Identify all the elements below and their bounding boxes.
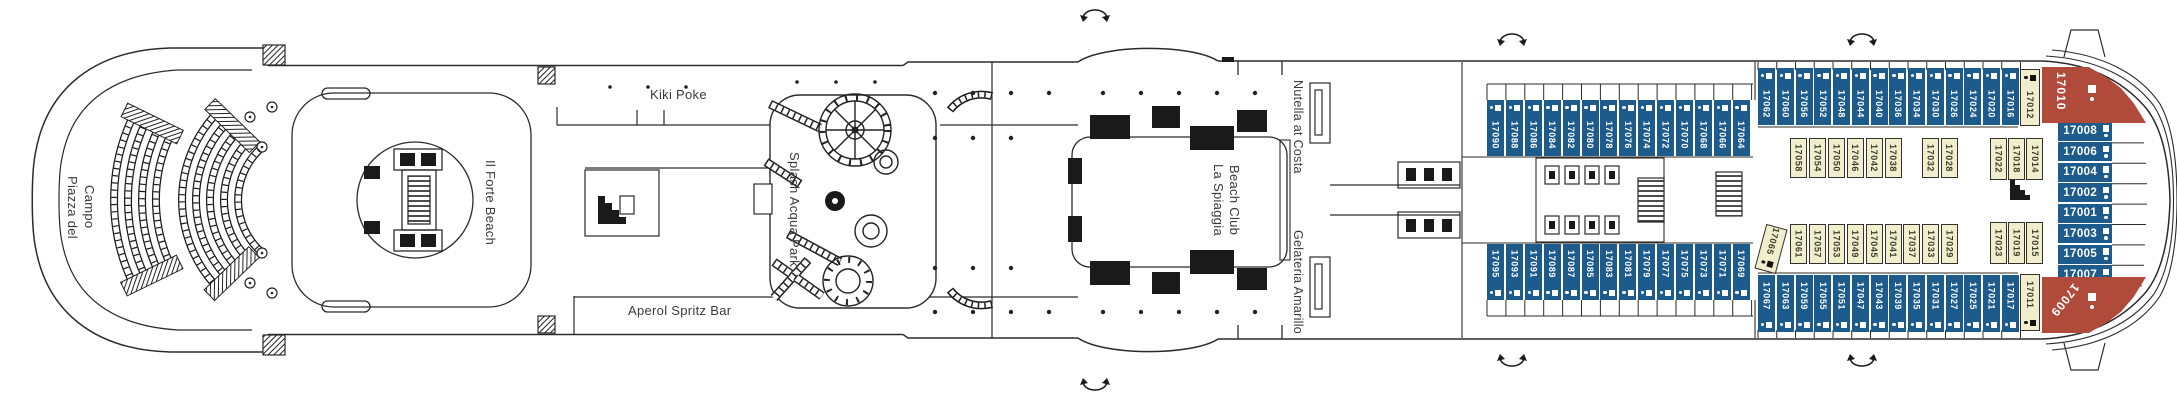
extra-berth-square-icon — [1973, 322, 1979, 328]
berth-icons — [1679, 100, 1691, 115]
upper-berth-dot-icon — [1948, 74, 1952, 78]
cabin-number: 17055 — [1818, 275, 1828, 317]
cabin-number: 17068 — [1698, 115, 1708, 156]
berth-icons — [1855, 317, 1867, 332]
extra-berth-square-icon — [1665, 290, 1671, 296]
extra-berth-square-icon — [1879, 322, 1885, 328]
berth-icons — [1930, 68, 1942, 83]
cabin-number: 17054 — [1812, 139, 1822, 177]
extra-berth-square-icon — [1590, 290, 1596, 296]
berth-icons — [1817, 68, 1829, 83]
cabin-number: 17085 — [1585, 244, 1595, 285]
extra-berth-square-icon — [1495, 290, 1501, 296]
extra-berth-square-icon — [1741, 290, 1747, 296]
berth-icons — [1546, 100, 1558, 115]
extra-berth-square-icon — [1646, 105, 1652, 111]
extra-berth-square-icon — [1898, 73, 1904, 79]
extra-berth-square-icon — [1823, 73, 1829, 79]
upper-berth-dot-icon — [1546, 291, 1550, 295]
cabin-number: 17034 — [1912, 83, 1922, 125]
cabin-number: 17004 — [2058, 166, 2103, 178]
cabin-number: 17087 — [1566, 244, 1576, 285]
upper-berth-dot-icon — [1967, 74, 1971, 78]
cabin-17075[interactable]: 17075 — [1676, 244, 1693, 300]
cabin-17022[interactable]: 17022 — [1990, 138, 2007, 180]
extra-berth-square-icon — [1514, 105, 1520, 111]
upper-berth-dot-icon — [1509, 106, 1513, 110]
upper-berth-dot-icon — [2104, 236, 2108, 240]
berth-icons — [1911, 317, 1923, 332]
extra-berth-square-icon — [1991, 322, 1997, 328]
cabin-17070[interactable]: 17070 — [1676, 100, 1693, 156]
upper-berth-dot-icon — [1641, 106, 1645, 110]
cabin-17012[interactable]: 17012 — [2020, 69, 2040, 126]
cabin-number: 17025 — [1968, 275, 1978, 317]
cabin-17084[interactable]: 17084 — [1544, 100, 1561, 156]
cabin-number: 17040 — [1874, 83, 1884, 125]
upper-berth-dot-icon — [1641, 291, 1645, 295]
cabin-17091[interactable]: 17091 — [1525, 244, 1542, 300]
cabin-number: 17069 — [1736, 244, 1746, 285]
cabin-number: 17024 — [1968, 83, 1978, 125]
cabin-number: 17048 — [1837, 83, 1847, 125]
extra-berth-square-icon — [1823, 322, 1829, 328]
extra-berth-square-icon — [2103, 207, 2110, 214]
cabin-17067[interactable]: 17067 — [1758, 275, 1775, 332]
extra-berth-square-icon — [1722, 290, 1728, 296]
cabin-17058[interactable]: 17058 — [1790, 138, 1807, 178]
cabin-17082[interactable]: 17082 — [1563, 100, 1580, 156]
cabin-number: 17015 — [2030, 223, 2040, 263]
upper-berth-dot-icon — [1735, 106, 1739, 110]
upper-berth-dot-icon — [1584, 291, 1588, 295]
extra-berth-square-icon — [1665, 105, 1671, 111]
cabin-17056[interactable]: 17056 — [1796, 68, 1813, 125]
cabin-number: 17029 — [1945, 225, 1955, 263]
cabin-number: 17075 — [1680, 244, 1690, 285]
cabin-17068[interactable]: 17068 — [1695, 100, 1712, 156]
cabin-17030[interactable]: 17030 — [1927, 68, 1944, 125]
cabin-17003[interactable]: 17003 — [2058, 224, 2112, 243]
cabin-number: 17093 — [1509, 244, 1519, 285]
upper-berth-dot-icon — [1698, 291, 1702, 295]
cabin-17053[interactable]: 17053 — [1828, 224, 1845, 264]
berth-icons — [1509, 285, 1521, 300]
extra-berth-square-icon — [1879, 73, 1885, 79]
upper-berth-dot-icon — [2104, 195, 2108, 199]
cabin-number: 17005 — [2058, 248, 2103, 260]
extra-berth-square-icon — [2103, 187, 2110, 194]
cabin-17063[interactable]: 17063 — [1777, 275, 1794, 332]
upper-berth-dot-icon — [1948, 323, 1952, 327]
extra-berth-square-icon — [1916, 322, 1922, 328]
cabin-17014[interactable]: 17014 — [2026, 138, 2043, 180]
upper-berth-dot-icon — [1986, 323, 1990, 327]
cabin-number: 17016 — [2005, 83, 2015, 125]
venue-label-kiki-poke: Kiki Poke — [650, 87, 707, 102]
cabin-17054[interactable]: 17054 — [1809, 138, 1826, 178]
stairs-updown-arrow-icon — [1080, 10, 1877, 390]
berth-icons — [1660, 285, 1672, 300]
cabin-17076[interactable]: 17076 — [1619, 100, 1636, 156]
deck-plan: Piazza del Campo Il Forte Beach Kiki Pok… — [0, 0, 2177, 400]
berth-icons — [2005, 317, 2017, 332]
cabin-number: 17039 — [1893, 275, 1903, 317]
cabin-number: 17011 — [2025, 275, 2035, 315]
cabin-17006[interactable]: 17006 — [2058, 142, 2112, 161]
cabin-17081[interactable]: 17081 — [1619, 244, 1636, 300]
upper-berth-dot-icon — [1528, 106, 1532, 110]
cabin-17020[interactable]: 17020 — [1983, 68, 2000, 125]
cabin-17061[interactable]: 17061 — [1790, 224, 1807, 264]
stern-ticks — [2112, 123, 2147, 286]
venue-label-gelateria-amarillo: Gelateria Amarillo — [1289, 224, 1306, 340]
extra-berth-square-icon — [1841, 73, 1847, 79]
cabin-17095[interactable]: 17095 — [1487, 244, 1504, 300]
berth-icons — [1717, 100, 1729, 115]
berth-icons — [1967, 317, 1979, 332]
upper-berth-dot-icon — [1892, 74, 1896, 78]
cabin-17046[interactable]: 17046 — [1847, 138, 1864, 178]
berth-icons — [1817, 317, 1829, 332]
upper-berth-dot-icon — [1817, 74, 1821, 78]
cabin-number: 17086 — [1528, 115, 1538, 156]
upper-berth-dot-icon — [1930, 323, 1934, 327]
berth-icons — [1698, 285, 1710, 300]
elevator-icon — [1545, 166, 1619, 234]
extra-berth-square-icon — [1935, 322, 1941, 328]
cabin-17032[interactable]: 17032 — [1922, 138, 1939, 178]
cabin-17043[interactable]: 17043 — [1871, 275, 1888, 332]
cabin-17057[interactable]: 17057 — [1809, 224, 1826, 264]
extra-berth-square-icon — [1785, 73, 1791, 79]
cabin-17044[interactable]: 17044 — [1852, 68, 1869, 125]
cabin-17073[interactable]: 17073 — [1695, 244, 1712, 300]
berth-icons — [1735, 285, 1747, 300]
cabin-17062[interactable]: 17062 — [1758, 68, 1775, 125]
berth-icons — [2088, 85, 2096, 101]
venue-label-nutella-at-costa: Nutella at Costa — [1289, 74, 1306, 180]
cabin-17087[interactable]: 17087 — [1563, 244, 1580, 300]
extra-berth-square-icon — [1991, 73, 1997, 79]
cabin-number: 17089 — [1547, 244, 1557, 285]
extra-berth-square-icon — [1935, 73, 1941, 79]
upper-berth-dot-icon — [1603, 291, 1607, 295]
cabin-17066[interactable]: 17066 — [1714, 100, 1731, 156]
upper-berth-dot-icon — [2024, 76, 2028, 80]
berth-icons — [1780, 68, 1792, 83]
upper-berth-dot-icon — [2104, 134, 2108, 138]
cabin-17049[interactable]: 17049 — [1847, 224, 1864, 264]
beach-club-structure — [1068, 61, 1290, 339]
cabin-number: 17022 — [1994, 139, 2004, 179]
cabin-17016[interactable]: 17016 — [2002, 68, 2019, 125]
cabin-17042[interactable]: 17042 — [1866, 138, 1883, 178]
berth-icons — [1873, 317, 1885, 332]
extra-berth-square-icon — [1514, 290, 1520, 296]
cabin-17071[interactable]: 17071 — [1714, 244, 1731, 300]
deck-stairs-curved — [950, 95, 992, 306]
cabin-17064[interactable]: 17064 — [1733, 100, 1750, 156]
berth-icons — [1622, 285, 1634, 300]
berth-icons — [1584, 285, 1596, 300]
cabin-17027[interactable]: 17027 — [1946, 275, 1963, 332]
cabin-17047[interactable]: 17047 — [1852, 275, 1869, 332]
cabin-number: 17037 — [1907, 225, 1917, 263]
upper-berth-dot-icon — [1698, 106, 1702, 110]
upper-berth-dot-icon — [1855, 323, 1859, 327]
upper-berth-dot-icon — [1565, 291, 1569, 295]
upper-berth-dot-icon — [1735, 291, 1739, 295]
berth-icons — [2024, 315, 2036, 330]
berth-icons — [1986, 317, 1998, 332]
amphitheatre-seating — [114, 99, 277, 301]
cabin-17086[interactable]: 17086 — [1525, 100, 1542, 156]
cabin-number: 17056 — [1799, 83, 1809, 125]
cabin-number: 17079 — [1642, 244, 1652, 285]
berth-icons — [1660, 100, 1672, 115]
upper-berth-dot-icon — [1546, 106, 1550, 110]
cabin-17052[interactable]: 17052 — [1814, 68, 1831, 125]
cabin-17069[interactable]: 17069 — [1733, 244, 1750, 300]
upper-berth-dot-icon — [1798, 74, 1802, 78]
berth-icons — [1679, 285, 1691, 300]
upper-berth-dot-icon — [1836, 74, 1840, 78]
berth-icons — [1603, 100, 1615, 115]
upper-berth-dot-icon — [2005, 323, 2009, 327]
extra-berth-square-icon — [1533, 105, 1539, 111]
cabin-17026[interactable]: 17026 — [1946, 68, 1963, 125]
berth-icons — [1641, 285, 1653, 300]
extra-berth-square-icon — [1495, 105, 1501, 111]
cabin-number: 17033 — [1926, 225, 1936, 263]
extra-berth-square-icon — [2030, 320, 2036, 326]
cabin-17037[interactable]: 17037 — [1903, 224, 1920, 264]
upper-berth-dot-icon — [1761, 260, 1765, 264]
upper-berth-dot-icon — [1660, 106, 1664, 110]
cabin-17011[interactable]: 17011 — [2020, 274, 2040, 331]
cabin-17034[interactable]: 17034 — [1908, 68, 1925, 125]
extra-berth-square-icon — [2103, 166, 2110, 173]
extra-berth-square-icon — [2103, 228, 2110, 235]
cabin-number: 17014 — [2030, 139, 2040, 179]
cabin-number: 17050 — [1831, 139, 1841, 177]
cabin-number: 17031 — [1930, 275, 1940, 317]
extra-berth-square-icon — [2010, 322, 2016, 328]
cabin-17055[interactable]: 17055 — [1814, 275, 1831, 332]
cabin-number: 17030 — [1930, 83, 1940, 125]
cabin-17038[interactable]: 17038 — [1885, 138, 1902, 178]
cabin-17051[interactable]: 17051 — [1833, 275, 1850, 332]
cabin-17085[interactable]: 17085 — [1582, 244, 1599, 300]
extra-berth-square-icon — [1628, 290, 1634, 296]
cabin-number: 17002 — [2058, 187, 2103, 199]
berth-icons — [1735, 100, 1747, 115]
cabin-number: 17009 — [2048, 281, 2083, 320]
extra-berth-square-icon — [1628, 105, 1634, 111]
cabin-17050[interactable]: 17050 — [1828, 138, 1845, 178]
extra-berth-square-icon — [1841, 322, 1847, 328]
cabin-number: 17044 — [1855, 83, 1865, 125]
berth-icons — [1622, 100, 1634, 115]
cabin-17015[interactable]: 17015 — [2026, 222, 2043, 264]
cabin-number: 17027 — [1949, 275, 1959, 317]
cabin-17072[interactable]: 17072 — [1657, 100, 1674, 156]
cabin-17023[interactable]: 17023 — [1990, 222, 2007, 264]
berth-icons — [1641, 100, 1653, 115]
cabin-number: 17080 — [1585, 115, 1595, 156]
cabin-17088[interactable]: 17088 — [1506, 100, 1523, 156]
cabin-number: 17065 — [1764, 226, 1781, 257]
cabin-17074[interactable]: 17074 — [1638, 100, 1655, 156]
berth-icons — [2103, 207, 2110, 219]
cabin-number: 17067 — [1762, 275, 1772, 317]
berth-icons — [1930, 317, 1942, 332]
cabin-17017[interactable]: 17017 — [2002, 275, 2019, 332]
cabin-17028[interactable]: 17028 — [1941, 138, 1958, 178]
berth-icons — [1528, 100, 1540, 115]
extra-berth-square-icon — [2103, 146, 2110, 153]
upper-berth-dot-icon — [2090, 305, 2094, 309]
berth-icons — [1761, 68, 1773, 83]
cabin-17060[interactable]: 17060 — [1777, 68, 1794, 125]
cabin-number: 17006 — [2058, 146, 2103, 158]
cabin-17024[interactable]: 17024 — [1964, 68, 1981, 125]
cabin-number: 17008 — [2058, 125, 2103, 137]
upper-berth-dot-icon — [1622, 291, 1626, 295]
cabin-17029[interactable]: 17029 — [1941, 224, 1958, 264]
berth-icons — [2103, 187, 2110, 199]
venue-label-la-spiaggia-beach-club: La Spiaggia Beach Club — [1210, 158, 1242, 242]
cabin-number: 17063 — [1780, 275, 1790, 317]
cabin-17078[interactable]: 17078 — [1600, 100, 1617, 156]
cabin-17093[interactable]: 17093 — [1506, 244, 1523, 300]
berth-icons — [1798, 68, 1810, 83]
berth-icons — [1873, 68, 1885, 83]
cabin-17045[interactable]: 17045 — [1866, 224, 1883, 264]
stairs-icon — [1638, 172, 2030, 222]
extra-berth-square-icon — [1954, 73, 1960, 79]
cabin-17077[interactable]: 17077 — [1657, 244, 1674, 300]
upper-berth-dot-icon — [1930, 74, 1934, 78]
berth-icons — [1490, 285, 1502, 300]
cabin-17025[interactable]: 17025 — [1964, 275, 1981, 332]
cabin-17040[interactable]: 17040 — [1871, 68, 1888, 125]
upper-berth-dot-icon — [2104, 257, 2108, 261]
cabin-17018[interactable]: 17018 — [2008, 138, 2025, 180]
extra-berth-square-icon — [1916, 73, 1922, 79]
cabin-number: 17035 — [1912, 275, 1922, 317]
venue-label-splash-acqua-park: Splash Acqua Park — [786, 150, 803, 268]
cabin-number: 17021 — [1987, 275, 1997, 317]
cabin-number: 17061 — [1794, 225, 1804, 263]
venue-label-piazza-del-campo: Piazza del Campo — [64, 146, 98, 268]
cabin-17021[interactable]: 17021 — [1983, 275, 2000, 332]
cabin-number: 17081 — [1623, 244, 1633, 285]
cabin-number: 17036 — [1893, 83, 1903, 125]
upper-berth-dot-icon — [1817, 323, 1821, 327]
cabin-number: 17012 — [2025, 85, 2035, 125]
berth-icons — [1546, 285, 1558, 300]
cabin-17033[interactable]: 17033 — [1922, 224, 1939, 264]
cabin-17002[interactable]: 17002 — [2058, 183, 2112, 202]
extra-berth-square-icon — [2010, 73, 2016, 79]
cabin-17001[interactable]: 17001 — [2058, 204, 2112, 223]
berth-icons — [1698, 100, 1710, 115]
extra-berth-square-icon — [1860, 322, 1866, 328]
cabin-number: 17010 — [2054, 72, 2068, 110]
cabin-number: 17071 — [1717, 244, 1727, 285]
extra-berth-square-icon — [1609, 105, 1615, 111]
cabin-17083[interactable]: 17083 — [1600, 244, 1617, 300]
berth-icons — [1836, 68, 1848, 83]
upper-berth-dot-icon — [1780, 323, 1784, 327]
cabin-number: 17073 — [1698, 244, 1708, 285]
cabin-number: 17043 — [1874, 275, 1884, 317]
upper-berth-dot-icon — [2090, 97, 2094, 101]
cabin-number: 17066 — [1717, 115, 1727, 156]
cabin-number: 17047 — [1855, 275, 1865, 317]
cabin-17004[interactable]: 17004 — [2058, 163, 2112, 182]
cabin-17019[interactable]: 17019 — [2008, 222, 2025, 264]
extra-berth-square-icon — [1785, 322, 1791, 328]
cabin-number: 17026 — [1949, 83, 1959, 125]
upper-berth-dot-icon — [1528, 291, 1532, 295]
cabin-number: 17059 — [1799, 275, 1809, 317]
upper-berth-dot-icon — [1490, 106, 1494, 110]
upper-berth-dot-icon — [2005, 74, 2009, 78]
berth-icons — [2103, 146, 2110, 158]
cabin-number: 17017 — [2005, 275, 2015, 317]
extra-berth-square-icon — [1703, 105, 1709, 111]
cabin-17059[interactable]: 17059 — [1796, 275, 1813, 332]
upper-berth-dot-icon — [1855, 74, 1859, 78]
berth-icons — [1584, 100, 1596, 115]
cabin-17008[interactable]: 17008 — [2058, 122, 2112, 141]
cabin-number: 17095 — [1491, 244, 1501, 285]
cabin-17089[interactable]: 17089 — [1544, 244, 1561, 300]
cabin-17090[interactable]: 17090 — [1487, 100, 1504, 156]
upper-berth-dot-icon — [1509, 291, 1513, 295]
berth-icons — [1911, 68, 1923, 83]
upper-berth-dot-icon — [1986, 74, 1990, 78]
berth-icons — [2103, 248, 2110, 260]
extra-berth-square-icon — [2103, 269, 2110, 276]
venue-label-aperol-spritz-bar: Aperol Spritz Bar — [628, 303, 731, 318]
cabin-17048[interactable]: 17048 — [1833, 68, 1850, 125]
berth-icons — [1760, 254, 1775, 271]
berth-icons — [1986, 68, 1998, 83]
cabin-17005[interactable]: 17005 — [2058, 245, 2112, 264]
upper-berth-dot-icon — [1584, 106, 1588, 110]
cabin-number: 17084 — [1547, 115, 1557, 156]
berth-icons — [1892, 317, 1904, 332]
cabin-17080[interactable]: 17080 — [1582, 100, 1599, 156]
cabin-number: 17023 — [1994, 223, 2004, 263]
upper-berth-dot-icon — [1660, 291, 1664, 295]
cabin-17031[interactable]: 17031 — [1927, 275, 1944, 332]
stairs-icon — [598, 196, 626, 224]
cabin-number: 17045 — [1869, 225, 1879, 263]
cabin-17035[interactable]: 17035 — [1908, 275, 1925, 332]
cabin-17041[interactable]: 17041 — [1885, 224, 1902, 264]
cabin-17036[interactable]: 17036 — [1889, 68, 1906, 125]
cabin-17079[interactable]: 17079 — [1638, 244, 1655, 300]
cabin-number: 17052 — [1818, 83, 1828, 125]
berth-icons — [1892, 68, 1904, 83]
cabin-number: 17038 — [1888, 139, 1898, 177]
cabin-17039[interactable]: 17039 — [1889, 275, 1906, 332]
